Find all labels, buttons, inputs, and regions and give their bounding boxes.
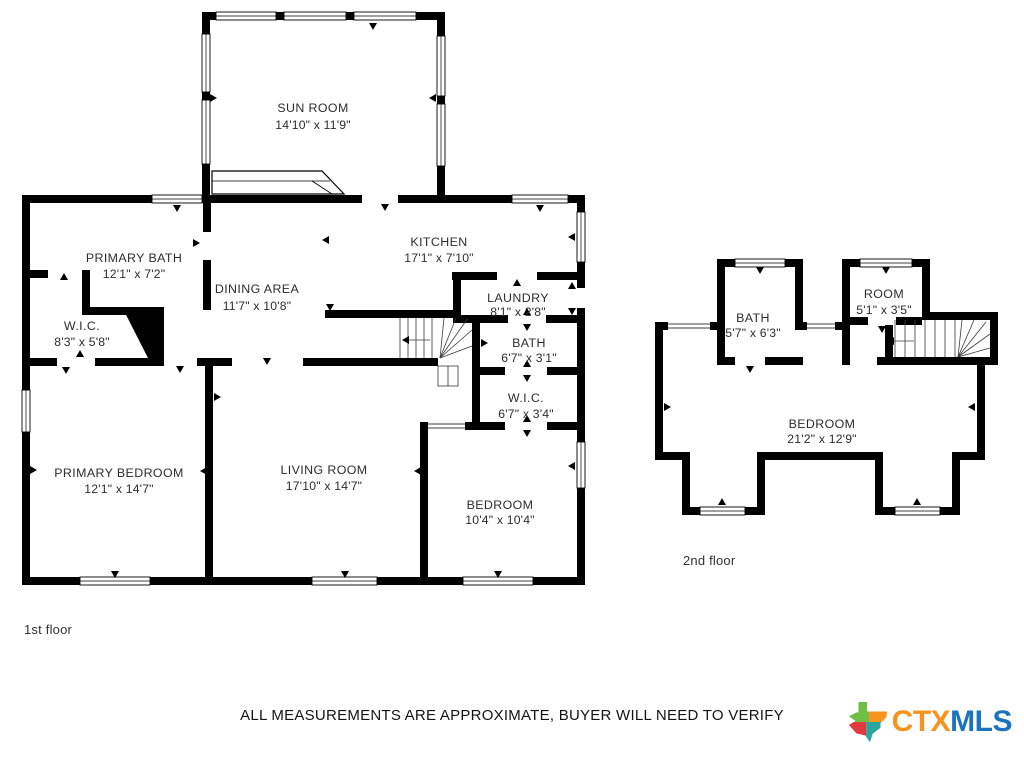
room-label-kitchen: KITCHEN xyxy=(410,235,467,249)
room-dims-room: 5'1" x 3'5" xyxy=(856,303,912,317)
logo-text-ctx: CTX xyxy=(892,697,951,747)
floor1-caption: 1st floor xyxy=(24,622,73,637)
ctxmls-logo: CTXMLS xyxy=(846,697,1012,747)
floorplan-page: { "floor1": { "label": "1st floor", "roo… xyxy=(0,0,1024,767)
room-label-bath-1: BATH xyxy=(512,336,546,350)
room-dims-living-room: 17'10" x 14'7" xyxy=(286,479,362,493)
floor2-walls xyxy=(655,259,998,515)
room-label-living-room: LIVING ROOM xyxy=(280,463,367,477)
floor2-stairs xyxy=(893,320,990,357)
room-label-wic-2: W.I.C. xyxy=(508,391,544,405)
room-dims-primary-bath: 12'1" x 7'2" xyxy=(103,267,165,281)
room-label-primary-bath: PRIMARY BATH xyxy=(86,251,182,265)
floor1-stairs xyxy=(400,318,472,386)
room-label-laundry: LAUNDRY xyxy=(487,291,549,305)
room-dims-kitchen: 17'1" x 7'10" xyxy=(404,251,473,265)
room-label-bath-2: BATH xyxy=(736,311,770,325)
room-dims-bath-1: 6'7" x 3'1" xyxy=(501,351,557,365)
room-label-wic-1: W.I.C. xyxy=(64,319,100,333)
room-dims-bath-2: 5'7" x 6'3" xyxy=(725,326,781,340)
texas-icon xyxy=(846,698,892,746)
room-label-bedroom-1: BEDROOM xyxy=(467,498,534,512)
room-label-bedroom-2: BEDROOM xyxy=(789,417,856,431)
room-dims-wic-2: 6'7" x 3'4" xyxy=(498,407,554,421)
floor-plan-drawing: SUN ROOM 14'10" x 11'9" PRIMARY BATH 12'… xyxy=(0,0,1024,767)
room-label-primary-bedroom: PRIMARY BEDROOM xyxy=(54,466,183,480)
room-dims-bedroom-2: 21'2" x 12'9" xyxy=(787,432,856,446)
room-dims-sun-room: 14'10" x 11'9" xyxy=(275,118,351,132)
room-dims-dining-area: 11'7" x 10'8" xyxy=(223,299,292,313)
floor2-caption: 2nd floor xyxy=(683,553,736,568)
room-dims-laundry: 8'1" x 2'8" xyxy=(490,305,546,319)
room-dims-primary-bedroom: 12'1" x 14'7" xyxy=(84,482,153,496)
room-dims-bedroom-1: 10'4" x 10'4" xyxy=(465,513,534,527)
sunroom-step xyxy=(212,171,344,194)
fireplace xyxy=(122,307,164,358)
room-dims-wic-1: 8'3" x 5'8" xyxy=(54,335,110,349)
room-label-sun-room: SUN ROOM xyxy=(277,101,348,115)
logo-text-mls: MLS xyxy=(950,697,1012,747)
room-label-room: ROOM xyxy=(864,287,904,301)
room-label-dining-area: DINING AREA xyxy=(215,282,300,296)
